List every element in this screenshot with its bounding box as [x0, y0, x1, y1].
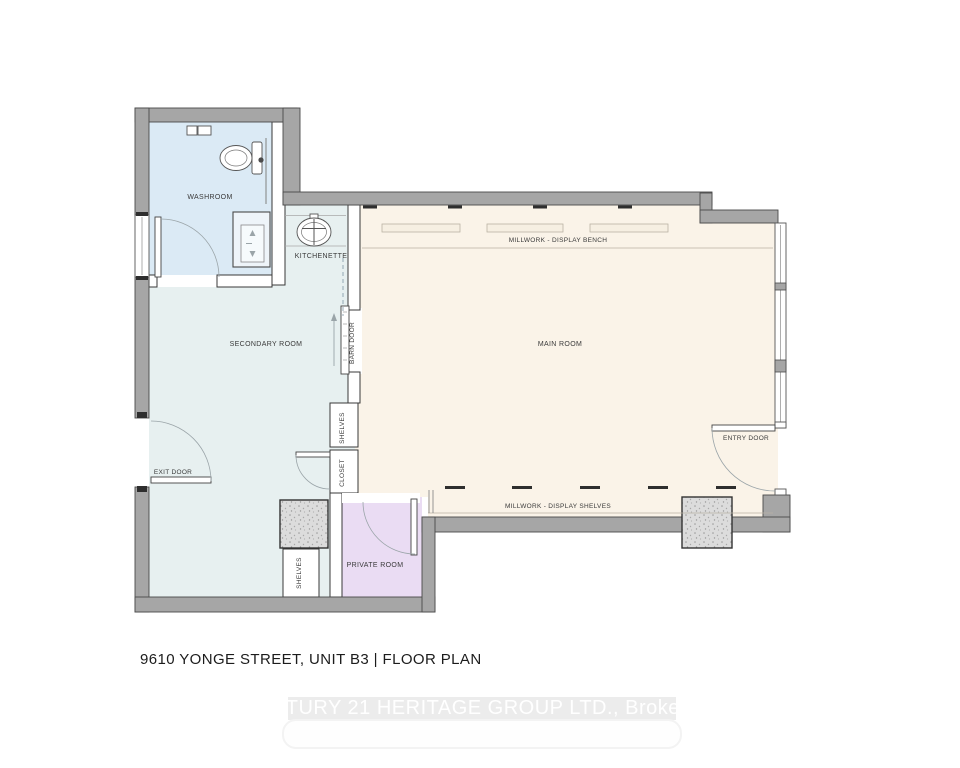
window-frame-tab — [775, 422, 786, 428]
shelf-tick — [716, 486, 736, 489]
shelves-bottom-label: SHELVES — [296, 557, 303, 589]
floor-plan-page: WASHROOM KITCHENETTE SECONDARY ROOM MAIN… — [0, 0, 960, 768]
watermark-ghost-outline — [282, 719, 682, 749]
wall-segment — [135, 597, 435, 612]
private-door-leaf — [411, 499, 417, 555]
shelf-tick — [445, 486, 465, 489]
accessory-box — [187, 126, 197, 135]
millwork-bench-label: MILLWORK - DISPLAY BENCH — [509, 237, 608, 244]
entry-door-leaf — [712, 425, 775, 431]
bench-segment — [590, 224, 668, 232]
exit-door-leaf — [151, 477, 211, 483]
wall-tick — [618, 206, 632, 209]
wall-tick — [448, 206, 462, 209]
flush-button — [258, 157, 263, 162]
private-room-floor — [340, 497, 422, 597]
wall-segment — [283, 192, 712, 205]
structural-column — [682, 497, 732, 548]
window-frame-tab — [136, 212, 148, 216]
barn-door-label: BARN DOOR — [349, 322, 356, 364]
wall-segment — [135, 277, 149, 418]
shelf-tick — [580, 486, 600, 489]
main-room-label: MAIN ROOM — [538, 341, 582, 348]
secondary-room-label: SECONDARY ROOM — [230, 341, 303, 348]
wall-segment — [135, 108, 297, 122]
wall-segment — [135, 487, 149, 612]
brokerage-watermark-band: CENTURY 21 HERITAGE GROUP LTD., Brokerag… — [288, 697, 676, 720]
door-frame-tab — [137, 486, 147, 492]
bench-segment — [487, 224, 563, 232]
wall-segment — [700, 210, 778, 223]
entry-door-label: ENTRY DOOR — [723, 435, 769, 442]
window-mullion — [775, 360, 786, 372]
washroom-label: WASHROOM — [187, 194, 232, 201]
page-title: 9610 YONGE STREET, UNIT B3 | FLOOR PLAN — [140, 651, 482, 668]
closet-label: CLOSET — [339, 459, 346, 487]
door-frame-tab — [137, 412, 147, 418]
wall-tick — [533, 206, 547, 209]
wall-segment — [348, 372, 360, 403]
wall-segment — [135, 108, 149, 215]
wall-segment — [217, 275, 272, 287]
wall-segment — [330, 493, 342, 597]
private-door-opening — [342, 493, 420, 503]
brokerage-watermark-text: CENTURY 21 HERITAGE GROUP LTD., Brokerag… — [242, 697, 722, 720]
wall-segment — [422, 517, 790, 532]
bench-segment — [382, 224, 460, 232]
closet-door-leaf — [296, 452, 330, 457]
millwork-shelves-label: MILLWORK - DISPLAY SHELVES — [505, 503, 611, 510]
shelf-tick — [512, 486, 532, 489]
wall-tick — [363, 206, 377, 209]
washroom-door-leaf — [155, 217, 161, 277]
shelf-tick — [648, 486, 668, 489]
kitchenette-label: KITCHENETTE — [295, 253, 347, 260]
window-mullion — [775, 283, 786, 290]
wall-segment — [348, 205, 360, 310]
window-frame-tab — [136, 276, 148, 280]
barn-door-panel — [341, 306, 349, 374]
window-frame-tab — [775, 489, 786, 495]
private-room-label: PRIVATE ROOM — [347, 562, 404, 569]
exit-door-label: EXIT DOOR — [154, 469, 192, 476]
structural-column — [280, 500, 328, 548]
accessory-box — [198, 126, 211, 135]
main-room-floor — [355, 205, 778, 519]
wall-segment — [422, 517, 435, 612]
wall-segment — [283, 108, 300, 205]
shelves-top-label: SHELVES — [339, 412, 346, 444]
